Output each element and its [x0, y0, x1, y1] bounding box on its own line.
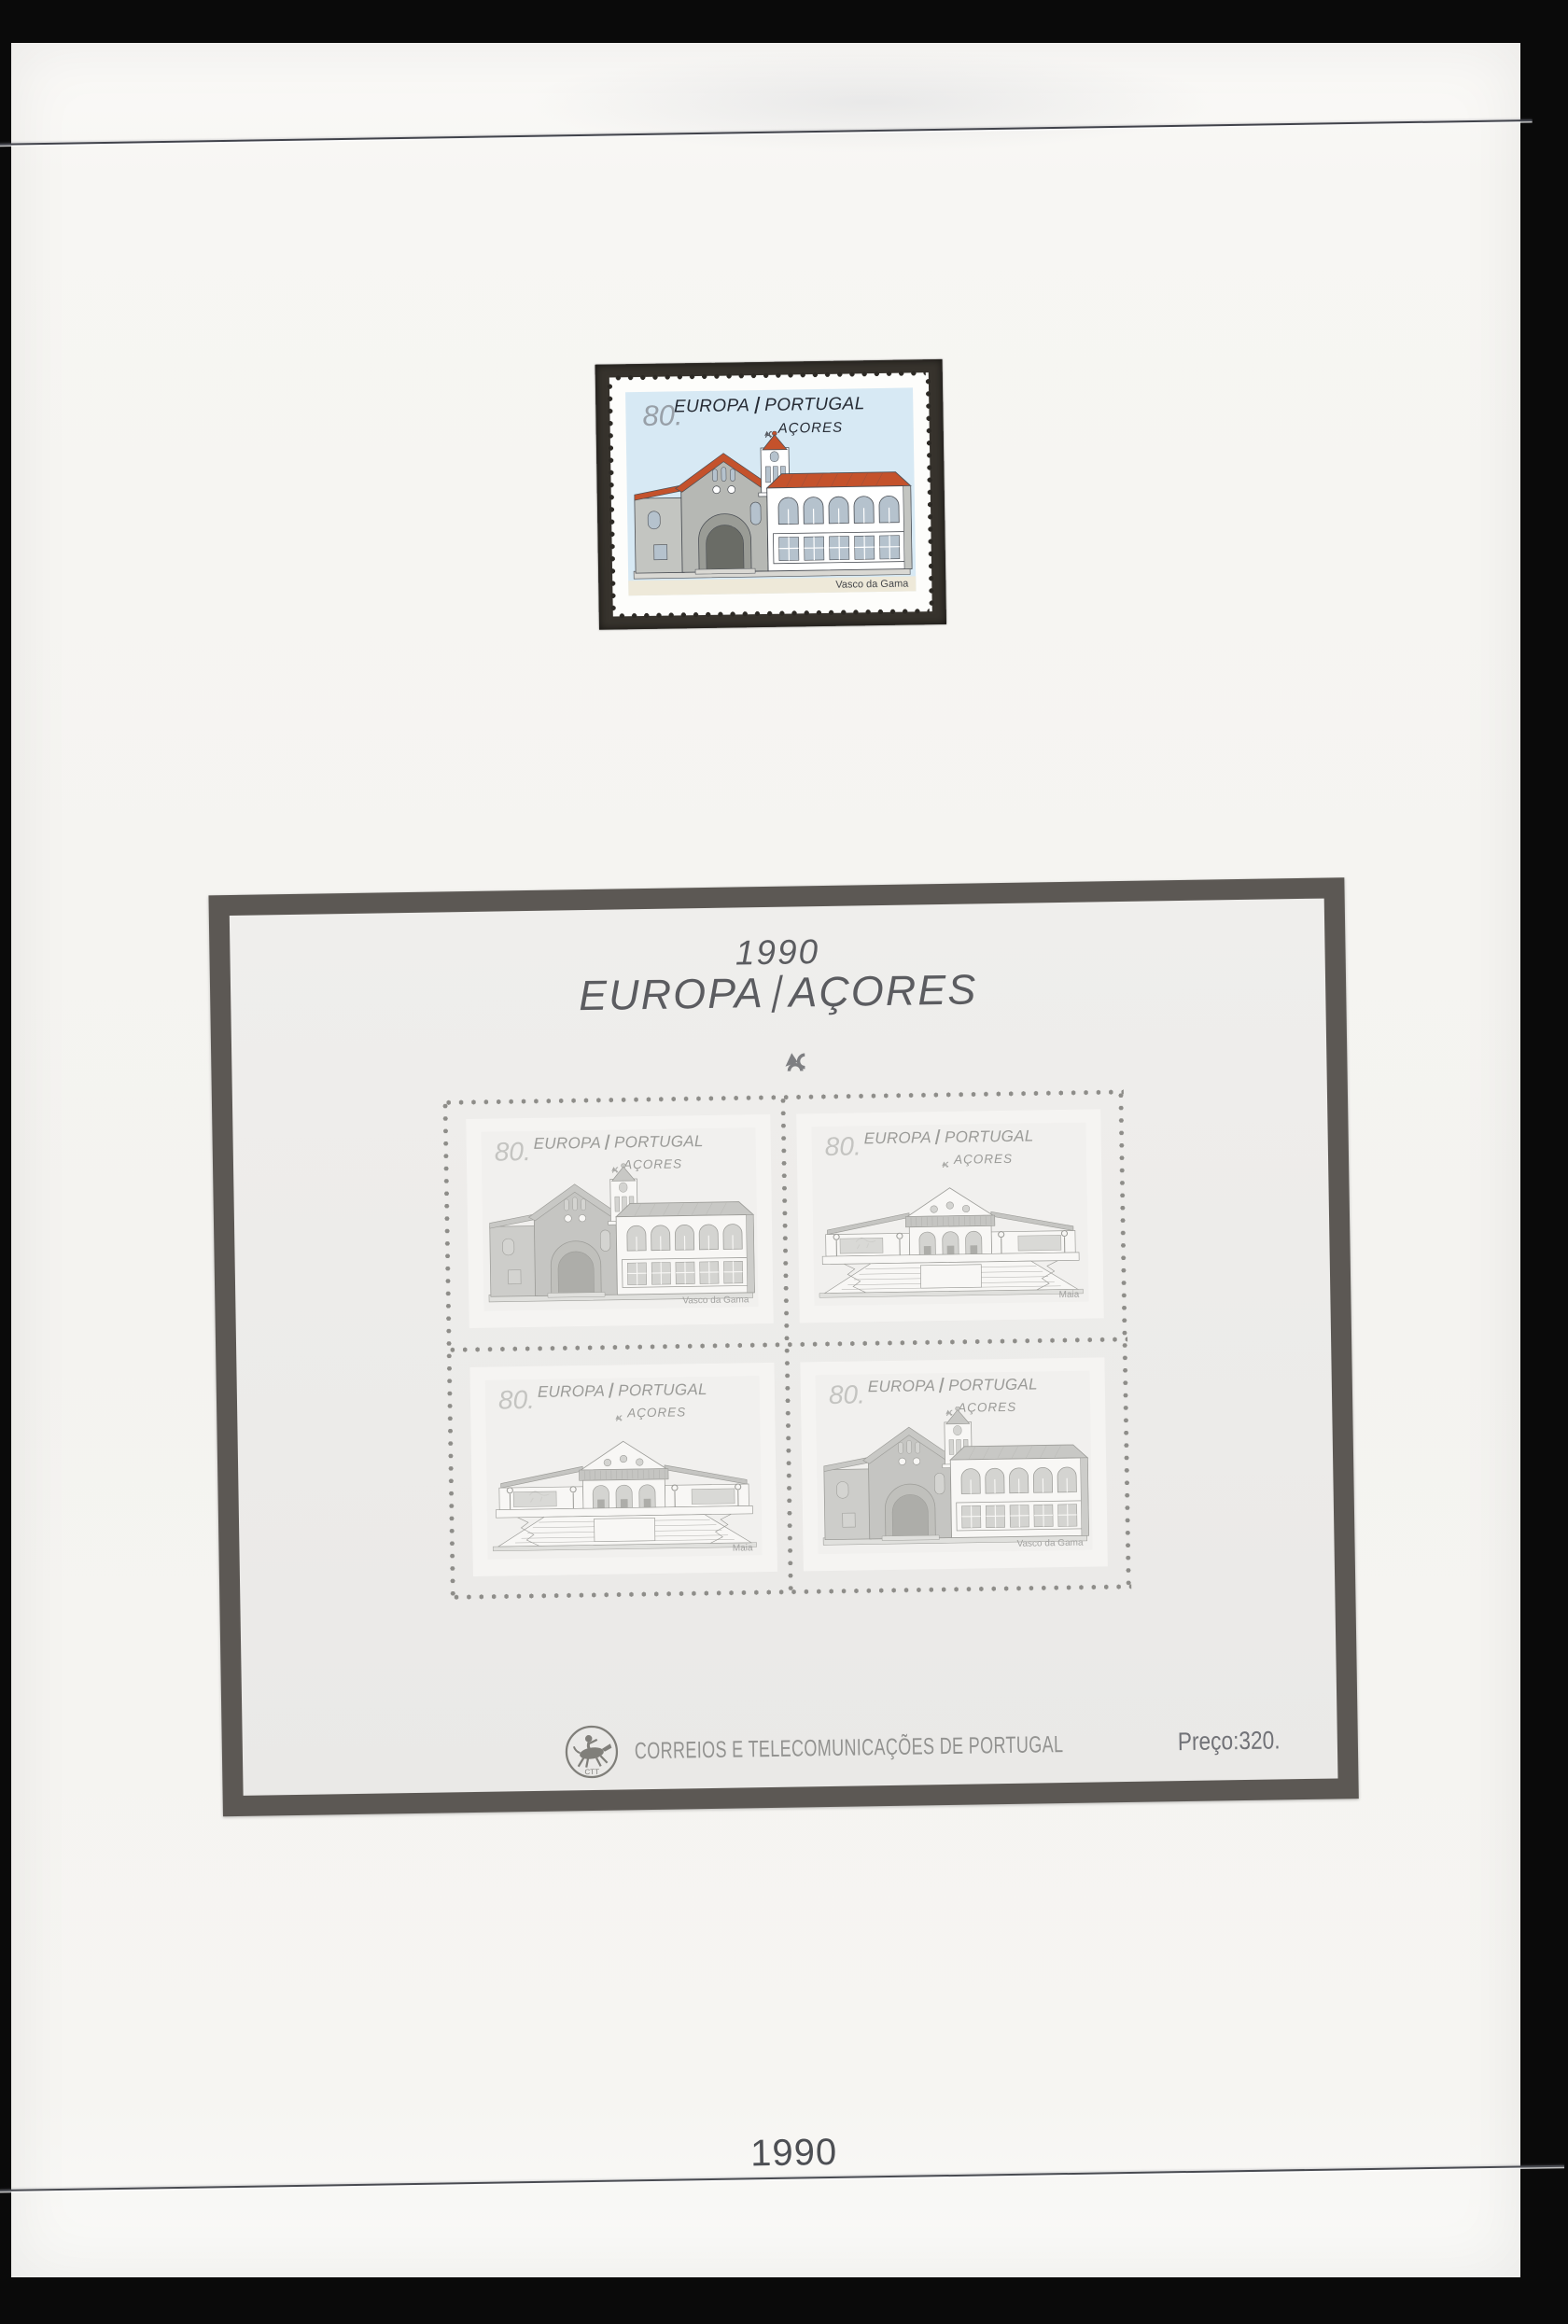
publisher-text: CORREIOS E TELECOMUNICAÇÕES DE PORTUGAL — [635, 1731, 1064, 1765]
country-left: EUROPA — [534, 1134, 602, 1153]
title-divider — [605, 1135, 610, 1150]
country-left: EUROPA — [868, 1377, 936, 1395]
price-text: Preço:320. — [1178, 1726, 1281, 1757]
stamp-caption: Vasco da Gama — [1016, 1538, 1083, 1549]
top-stamp: 80. EUROPAPORTUGAL AÇORES Vasco da Gama — [609, 372, 932, 616]
title-divider — [771, 975, 782, 1013]
sheet-stamp: 80. EUROPAPORTUGAL AÇORES Vasco da Gama — [800, 1357, 1107, 1571]
photo-backdrop: 80. EUROPAPORTUGAL AÇORES Vasco da Gama — [0, 0, 1568, 2324]
stamp-country-title: EUROPAPORTUGAL — [482, 1131, 756, 1155]
perforation-bottom — [616, 608, 930, 619]
country-left: EUROPA — [538, 1382, 606, 1401]
title-divider — [935, 1129, 941, 1144]
stamp-block: 80. EUROPAPORTUGAL AÇORES Vasco da Gama — [445, 1092, 1128, 1597]
souvenir-sheet: 1990 EUROPAAÇORES 80 — [230, 899, 1338, 1796]
vasco-da-gama-illustration — [482, 1161, 758, 1306]
page-top-edge-line — [0, 119, 1533, 147]
sheet-title-right: AÇORES — [789, 965, 978, 1015]
sheet-stamp: 80. EUROPAPORTUGAL AÇORES Vasco da Gama — [466, 1114, 773, 1328]
stamp-design: 80. EUROPAPORTUGAL AÇORES Vasco da Gama — [481, 1127, 758, 1311]
sheet-stamp: 80. EUROPAPORTUGAL AÇORES Maia — [796, 1109, 1103, 1323]
cept-emblem-icon — [753, 1020, 805, 1071]
maia-illustration — [812, 1156, 1088, 1301]
title-divider — [609, 1383, 614, 1398]
stamp-country-title: EUROPAPORTUGAL — [625, 393, 913, 418]
album-page: 80. EUROPAPORTUGAL AÇORES Vasco da Gama — [11, 43, 1520, 2277]
title-divider — [754, 397, 760, 413]
stamp-caption: Maia — [733, 1543, 753, 1553]
stamp-design: 80. EUROPAPORTUGAL AÇORES Maia — [811, 1123, 1088, 1307]
perforation-top — [612, 370, 926, 381]
vasco-da-gama-illustration — [816, 1405, 1092, 1549]
page-year-label: 1990 — [719, 2131, 869, 2176]
country-right: PORTUGAL — [618, 1380, 707, 1399]
country-right: PORTUGAL — [764, 394, 865, 415]
stamp-country-title: EUROPAPORTUGAL — [816, 1375, 1090, 1398]
stamp-caption: Vasco da Gama — [682, 1295, 749, 1306]
perforation-left — [607, 380, 617, 613]
country-left: EUROPA — [674, 396, 750, 416]
vasco-da-gama-illustration — [626, 428, 916, 582]
country-right: PORTUGAL — [945, 1127, 1034, 1145]
sheet-title-left: EUROPA — [579, 969, 764, 1019]
stamp-design: 80. EUROPAPORTUGAL AÇORES Vasco da Gama — [816, 1371, 1093, 1555]
stamp-caption: Vasco da Gama — [835, 579, 908, 591]
maia-illustration — [485, 1409, 762, 1554]
stamp-country-title: EUROPAPORTUGAL — [485, 1379, 760, 1403]
stamp-country-title: EUROPAPORTUGAL — [812, 1127, 1086, 1150]
ctt-rider-icon — [563, 1724, 620, 1781]
stamp-mount: 80. EUROPAPORTUGAL AÇORES Vasco da Gama — [595, 359, 946, 630]
stamp-design: 80. EUROPAPORTUGAL AÇORES Maia — [485, 1376, 763, 1560]
souvenir-sheet-mount: 1990 EUROPAAÇORES 80 — [208, 877, 1358, 1816]
stamp-design: 80. EUROPAPORTUGAL AÇORES Vasco da Gama — [625, 387, 916, 595]
country-right: PORTUGAL — [614, 1132, 704, 1151]
sheet-stamp: 80. EUROPAPORTUGAL AÇORES Maia — [469, 1363, 777, 1576]
perforation-right — [925, 375, 935, 609]
country-right: PORTUGAL — [948, 1375, 1038, 1393]
stamp-caption: Maia — [1059, 1290, 1080, 1300]
title-divider — [939, 1378, 945, 1393]
country-left: EUROPA — [864, 1128, 932, 1147]
album-page-content: 80. EUROPAPORTUGAL AÇORES Vasco da Gama — [0, 31, 1538, 2289]
